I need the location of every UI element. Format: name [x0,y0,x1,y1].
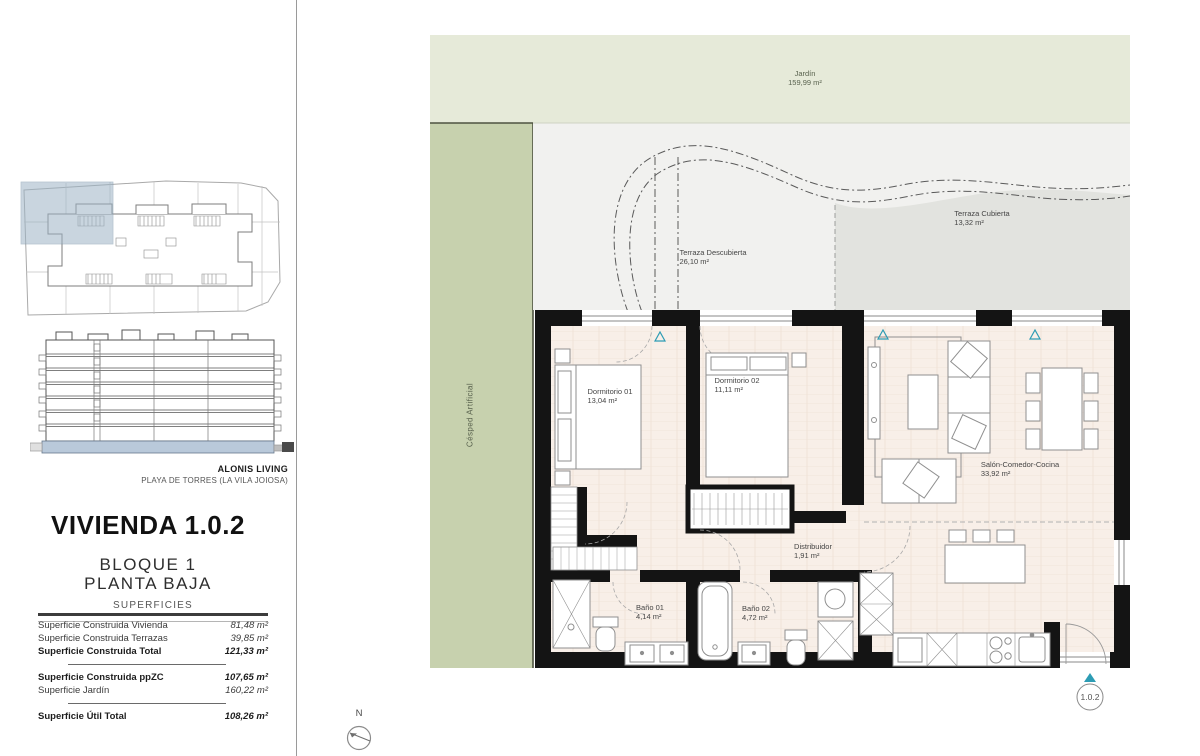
floor-title: PLANTA BAJA [0,574,296,594]
table-row: Superficie Construida Terrazas 39,85 m² [38,632,268,645]
unit-badge: 1.0.2 [1077,673,1103,710]
row-value: 81,48 m² [231,619,269,632]
row-value: 107,65 m² [225,671,268,684]
room-label-jardin: Jardín 159,99 m² [788,69,822,87]
floor-plan-drawing: 1.0.2 [430,35,1130,735]
row-label: Superficie Construida Total [38,645,161,658]
surfaces-heading: SUPERFICIES [38,600,268,611]
north-compass-icon: N [337,700,381,754]
row-value: 121,33 m² [225,645,268,658]
table-row: Superficie Construida Vivienda 81,48 m² [38,619,268,632]
row-label: Superficie Construida Terrazas [38,632,168,645]
table-separator [68,703,226,704]
site-key-plan [16,174,292,322]
room-label-dormitorio-02: Dormitorio 02 11,11 m² [714,376,759,394]
row-label: Superficie Construida Vivienda [38,619,168,632]
panel-divider [296,0,297,756]
room-label-cesped-artificial: Césped Artificial [466,383,475,447]
brand-block: ALONIS LIVING PLAYA DE TORRES (LA VILA J… [40,464,288,486]
room-label-dormitorio-01: Dormitorio 01 13,04 m² [587,387,632,405]
row-value: 108,26 m² [225,710,268,723]
floorplan-sheet: ALONIS LIVING PLAYA DE TORRES (LA VILA J… [0,0,1200,756]
building-elevation [30,328,296,466]
svg-text:N: N [356,708,363,719]
table-row: Superficie Construida ppZC 107,65 m² [38,671,268,684]
garden-zone [430,35,1130,123]
lawn-strip [430,123,533,668]
room-label-terraza-descubierta: Terraza Descubierta 26,10 m² [679,248,746,266]
project-location: PLAYA DE TORRES (LA VILA JOIOSA) [40,475,288,486]
table-row: Superficie Jardín 160,22 m² [38,684,268,697]
row-value: 160,22 m² [225,684,268,697]
page-title: VIVIENDA 1.0.2 [0,510,296,541]
room-label-distribuidor: Distribuidor 1,91 m² [794,542,832,560]
surfaces-table: Superficie Construida Vivienda 81,48 m² … [38,619,268,723]
table-row: Superficie Construida Total 121,33 m² [38,645,268,658]
unit-pointer-icon [1084,673,1096,682]
row-label: Superficie Jardín [38,684,109,697]
room-label-salon: Salón-Comedor-Cocina 33,92 m² [981,460,1059,478]
unit-highlight-overlay [21,182,113,244]
room-label-terraza-cubierta: Terraza Cubierta 13,32 m² [954,209,1009,227]
room-label-bano-01: Baño 01 4,14 m² [636,603,664,621]
row-label: Superficie Útil Total [38,710,127,723]
row-label: Superficie Construida ppZC [38,671,164,684]
ground-floor-highlight [42,441,274,453]
block-title: BLOQUE 1 [0,555,296,575]
project-name: ALONIS LIVING [40,464,288,475]
unit-badge-label: 1.0.2 [1081,692,1100,702]
table-separator [68,664,226,665]
row-value: 39,85 m² [231,632,269,645]
table-row: Superficie Útil Total 108,26 m² [38,710,268,723]
room-label-bano-02: Baño 02 4,72 m² [742,604,770,622]
